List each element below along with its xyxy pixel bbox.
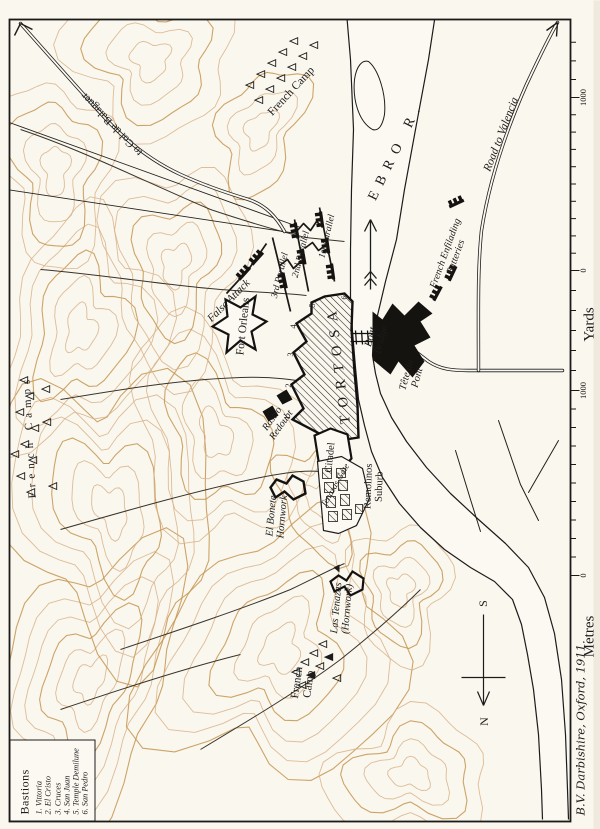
- map-sheet: Bastions 1. Vittoria 2. El Cristo 3. Cru…: [0, 0, 600, 829]
- scan-edge-shadow: [593, 0, 600, 829]
- legend-item: 5. Temple Demilune: [71, 743, 80, 814]
- legend-item: 2. El Cristo: [43, 743, 52, 814]
- legend-heading: Bastions: [17, 743, 32, 814]
- legend-item: 1. Vittoria: [34, 743, 43, 814]
- legend-item: 6. San Pedro: [80, 743, 89, 814]
- map-scan: Bastions 1. Vittoria 2. El Cristo 3. Cru…: [0, 0, 600, 829]
- legend-item: 4. San Juan: [62, 743, 71, 814]
- map-canvas: [0, 0, 600, 829]
- legend-item: 3. Cruces: [53, 743, 62, 814]
- legend-bastions: Bastions 1. Vittoria 2. El Cristo 3. Cru…: [9, 739, 95, 821]
